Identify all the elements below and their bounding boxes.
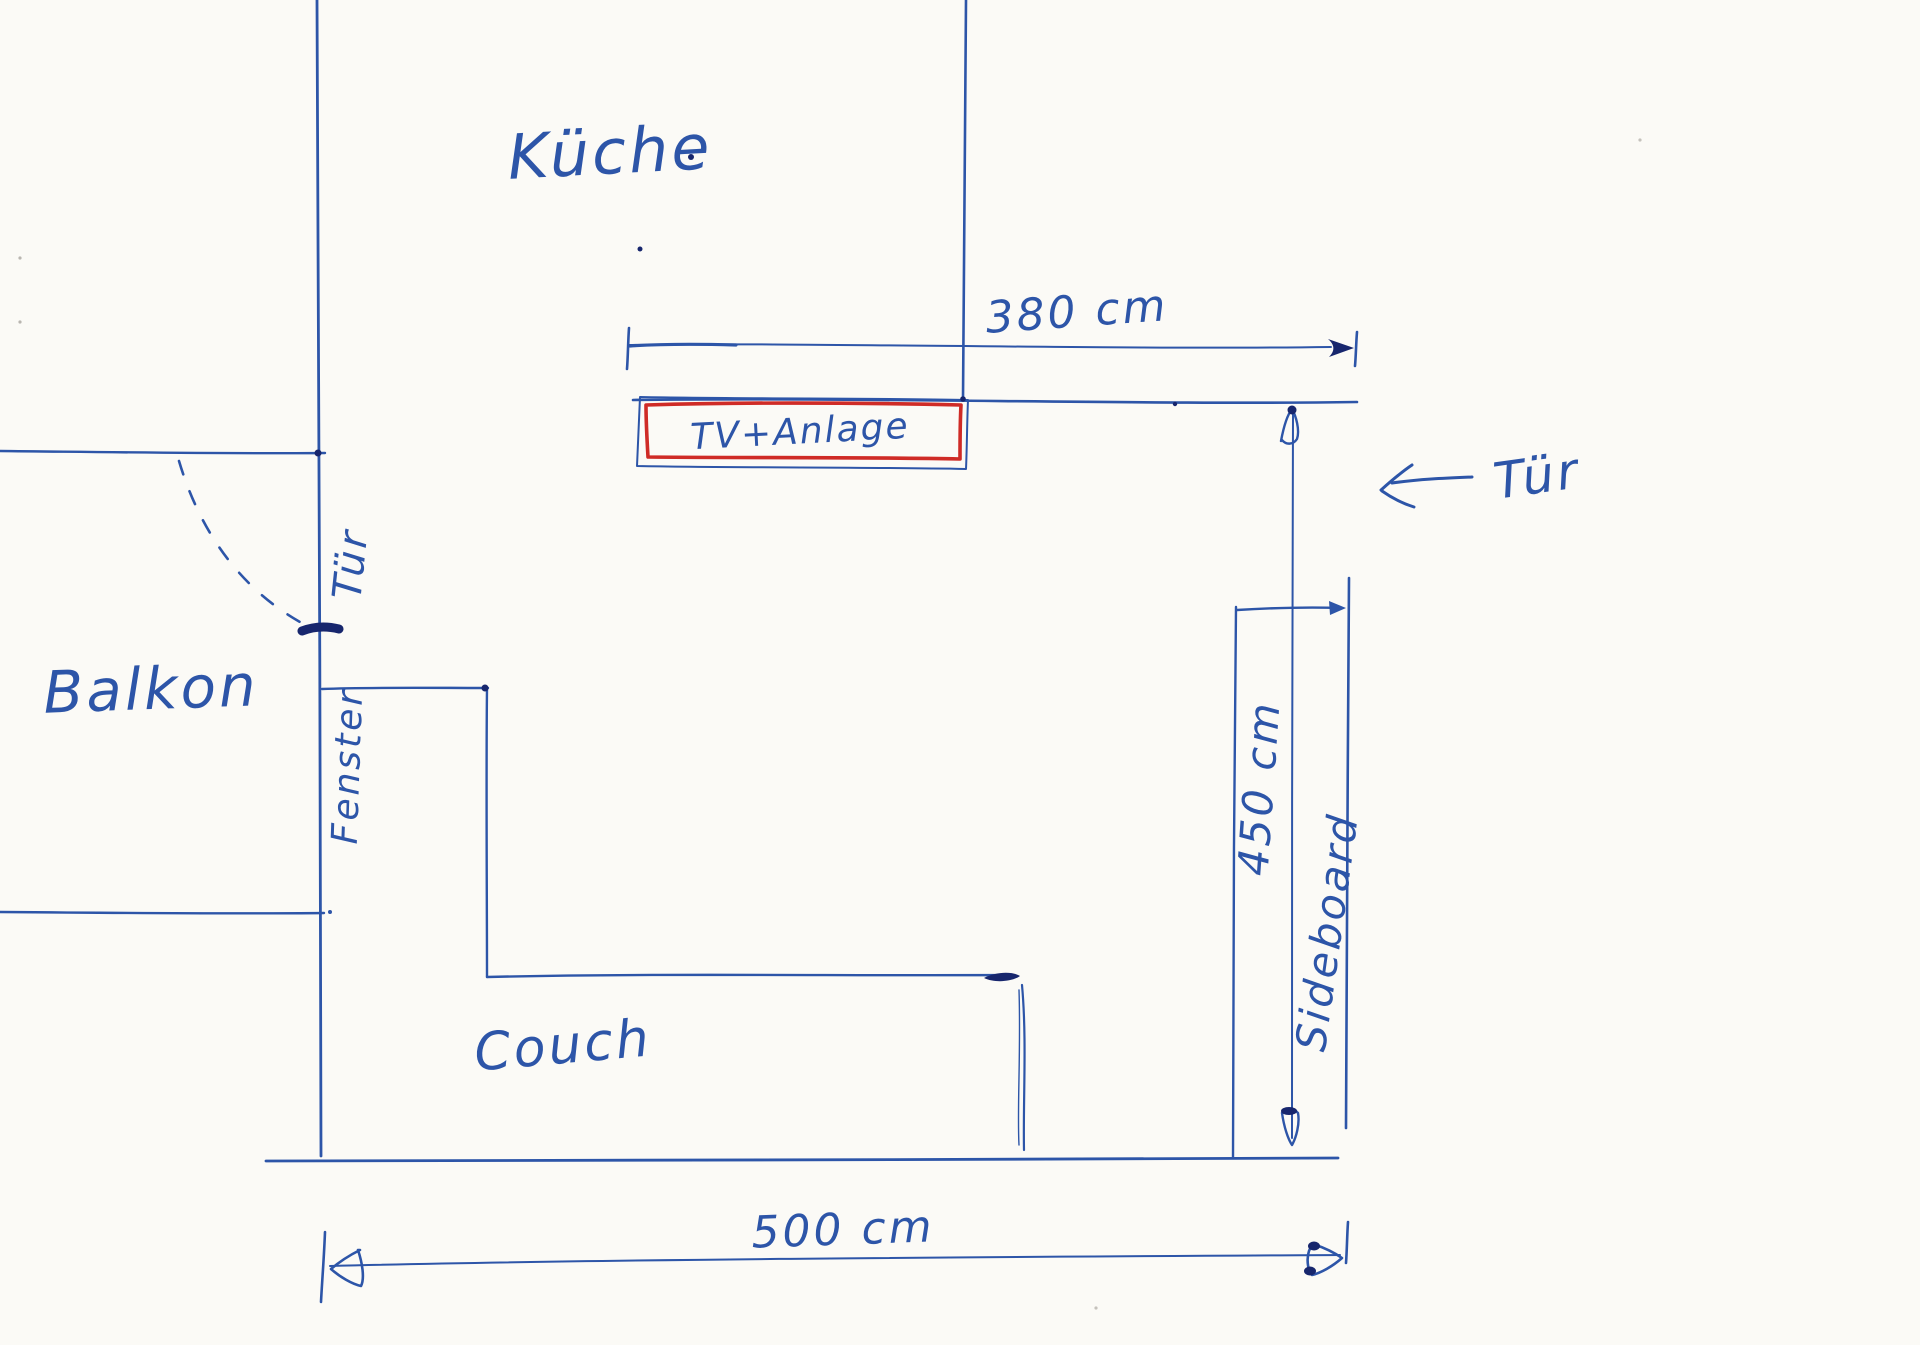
couch-bottom-edge: [487, 975, 1010, 977]
sideboard-top-arrowhead: [1329, 601, 1346, 615]
ink-dot-tv-wall: [1173, 402, 1177, 406]
dim-380-line-overstroke: [630, 344, 736, 346]
dim-380-left-tick: [627, 328, 629, 369]
dim-380-right-tick: [1355, 332, 1357, 366]
balcony-door-label: Tür: [324, 526, 377, 602]
dim-450-down-arrow-tip: [1281, 1107, 1297, 1115]
couch-right-vertical: [1022, 985, 1025, 1150]
ink-dot-balcony-wall-end: [328, 910, 332, 914]
sideboard-left-edge: [1233, 607, 1236, 1158]
ink-dot-kitchen: [638, 247, 643, 252]
couch-right-vertical-2: [1018, 990, 1019, 1145]
entry-door-arrowhead-bottom: [1382, 491, 1414, 507]
dim-500-right-arrow-blob2: [1304, 1267, 1316, 1276]
ink-dot-balcony-corner: [315, 450, 322, 457]
paper-speck-1: [18, 256, 21, 259]
entry-door-arrow-shaft: [1392, 477, 1472, 483]
paper-speck-2: [18, 320, 21, 323]
kitchen-right-wall: [963, 0, 966, 399]
dim-500-left-tick: [321, 1232, 325, 1302]
balcony-door-swing-arc: [179, 461, 300, 622]
bottom-wall: [266, 1158, 1338, 1161]
window-label: Fenster: [325, 687, 371, 845]
entry-door-arrowhead-top: [1381, 465, 1412, 490]
balcony-top-wall: [0, 451, 325, 453]
dim-500-right-tick: [1346, 1222, 1348, 1263]
kitchen-label: Küche: [506, 110, 714, 194]
dim-500-line: [330, 1255, 1340, 1266]
dim-380-right-arrowhead: [1328, 339, 1354, 357]
dim-500-label: 500 cm: [751, 1201, 936, 1258]
balcony-door-mark: [302, 627, 339, 631]
ink-dot-couch-corner: [482, 685, 489, 692]
dim-450-up-arrow-tip: [1288, 406, 1297, 415]
floorplan-svg: [0, 0, 1920, 1345]
dim-500-left-arrowhead: [331, 1250, 363, 1286]
balcony-label: Balkon: [42, 651, 260, 726]
paper-speck-3: [1638, 138, 1641, 141]
dim-450-up-arrowhead: [1281, 409, 1298, 444]
left-wall: [317, 0, 321, 1156]
sideboard-top-edge: [1237, 608, 1341, 610]
paper-speck-4: [1094, 1306, 1097, 1309]
ink-dot-kitchen-wall-foot: [960, 396, 966, 402]
dim-500-right-arrow-blob1: [1308, 1242, 1320, 1251]
balcony-bottom-wall: [0, 912, 324, 913]
floorplan-sketch-paper: Küche Balkon Couch Tür Tür Fenster Sideb…: [0, 0, 1920, 1345]
entry-door-label: Tür: [1490, 441, 1584, 511]
